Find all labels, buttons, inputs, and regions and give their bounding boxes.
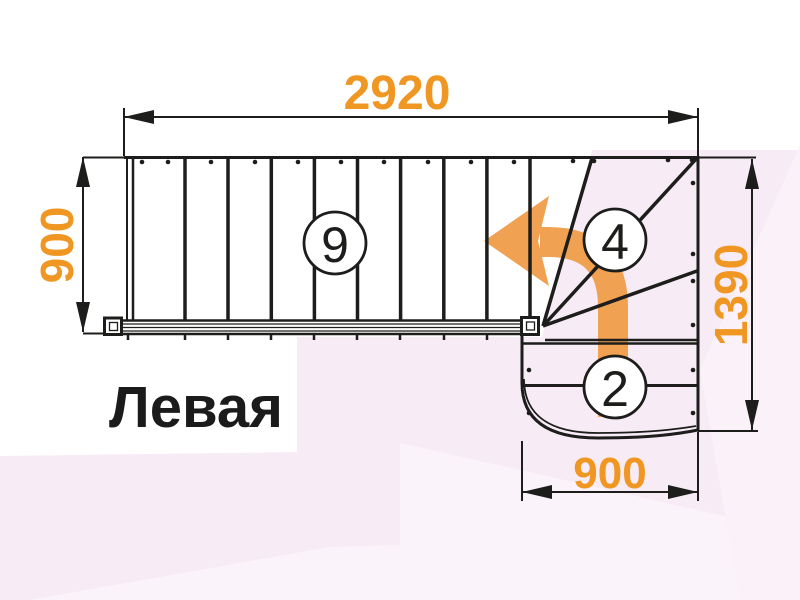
step-count-winder-label: 4 (601, 214, 629, 270)
step-count-badge-winder: 4 (584, 209, 646, 271)
dimension-label-flight-width: 900 (31, 207, 83, 284)
staircase-drawing-page: 2920 900 1390 900 9 4 (0, 0, 800, 600)
step-count-badge-straight: 9 (304, 212, 366, 274)
dimension-label-lower-flight-width: 900 (573, 449, 646, 498)
newel-post-left (105, 318, 122, 335)
dimension-label-total-length: 2920 (344, 67, 451, 120)
step-count-badge-lower: 2 (584, 356, 646, 418)
step-count-lower-label: 2 (601, 361, 629, 417)
staircase-plan-drawing: 2920 900 1390 900 9 4 (0, 0, 800, 600)
newel-post-right (522, 318, 539, 335)
drawing-title: Левая (109, 375, 283, 440)
dimension-label-total-width: 1390 (705, 244, 757, 346)
step-count-straight-label: 9 (321, 217, 349, 273)
